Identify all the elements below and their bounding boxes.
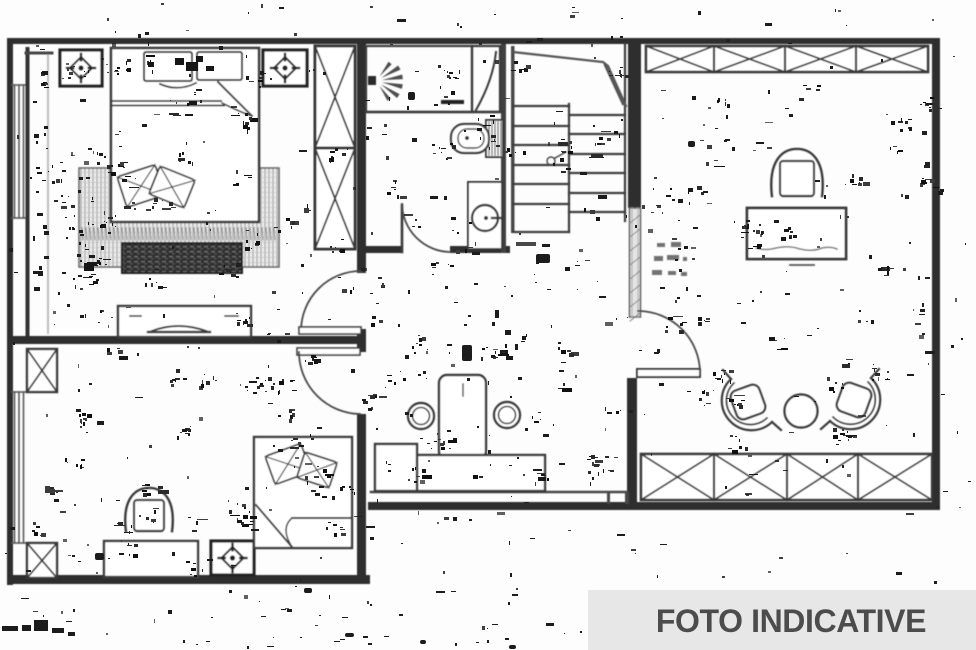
- svg-text:FOTO INDICATIVE: FOTO INDICATIVE: [656, 603, 926, 639]
